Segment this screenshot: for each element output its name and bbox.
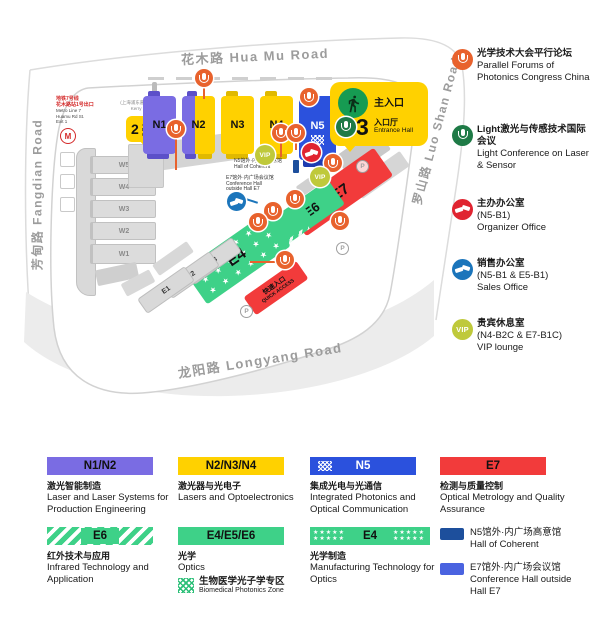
category-zh: 红外技术与应用 [47, 550, 175, 562]
vip-icon: VIP [452, 319, 473, 340]
outside-zh: N5馆外·内广场高意馆 [470, 527, 590, 539]
legend-zh: 光学技术大会平行论坛 [477, 48, 593, 60]
legend-item-parallel-forums: 光学技术大会平行论坛 Parallel Forums of Photonics … [448, 48, 600, 83]
handshake-red-icon [452, 199, 473, 220]
band-e4: ★★★★★ ★★★★★ E4 ★★★★★ ★★★★★ [310, 527, 430, 545]
biomedical-en: Biomedical Photonics Zone [199, 587, 318, 595]
legend-en: Parallel Forums of Photonics Congress Ch… [477, 60, 593, 83]
legend-loc: (N4-B2C & E7-B1C) [477, 330, 593, 342]
handshake-blue-icon [452, 259, 473, 280]
conference-swatch [440, 563, 464, 575]
coherent-swatch [440, 528, 464, 540]
legend-en: Organizer Office [477, 222, 593, 234]
category-optics: 光学 Optics [178, 550, 306, 574]
biomedical-zh: 生物医学光子学专区 [199, 576, 318, 587]
legend-item-vip-lounge: VIP 贵宾休息室 (N4-B2C & E7-B1C) VIP lounge [448, 318, 600, 353]
category-zh: 激光智能制造 [47, 480, 175, 492]
category-e4: 光学制造 Manufacturing Technology for Optics [310, 550, 438, 585]
band-label: N2/N3/N4 [206, 460, 257, 472]
category-e6: 红外技术与应用 Infrared Technology and Applicat… [47, 550, 175, 585]
category-zh: 光学 [178, 550, 306, 562]
biomedical-zone: 生物医学光子学专区 Biomedical Photonics Zone [178, 576, 318, 595]
legend-en: Sales Office [477, 282, 593, 294]
legend-item-light-conference: Light激光与传感技术国际会议 Light Conference on Las… [448, 124, 600, 171]
mic-orange-icon [452, 49, 473, 70]
band-e6-solid: E6 [81, 528, 119, 544]
legend-loc: (N5-B1) [477, 210, 593, 222]
category-zh: 检测与质量控制 [440, 480, 568, 492]
category-en: Optical Metrology and Quality Assurance [440, 492, 568, 515]
category-en: Infrared Technology and Application [47, 562, 175, 585]
legend-en: VIP lounge [477, 342, 593, 354]
side-legend: 光学技术大会平行论坛 Parallel Forums of Photonics … [0, 0, 605, 445]
category-e7: 检测与质量控制 Optical Metrology and Quality As… [440, 480, 568, 515]
legend-zh: Light激光与传感技术国际会议 [477, 124, 593, 148]
vip-icon-label: VIP [456, 325, 469, 334]
outside-hall-coherent: N5馆外·内广场高意馆 Hall of Coherent [440, 527, 590, 551]
band-e4-e5-e6: E4/E5/E6 [178, 527, 284, 545]
outside-zh: E7馆外·内广场会议馆 [470, 562, 590, 574]
category-n1-n2: 激光智能制造 Laser and Laser Systems for Produ… [47, 480, 175, 515]
category-en: Laser and Laser Systems for Production E… [47, 492, 175, 515]
category-n5: 集成光电与光通信 Integrated Photonics and Optica… [310, 480, 438, 515]
band-label: N5 [356, 460, 371, 472]
band-e4-stars-right: ★★★★★ ★★★★★ [391, 530, 427, 542]
category-en: Manufacturing Technology for Optics [310, 562, 438, 585]
category-zh: 光学制造 [310, 550, 438, 562]
band-label: E6 [93, 530, 107, 542]
n5-hatch-icon [318, 461, 332, 471]
band-label: N1/N2 [84, 460, 117, 472]
legend-item-organizer-office: 主办办公室 (N5-B1) Organizer Office [448, 198, 600, 233]
star-row: ★★★★★ [393, 536, 425, 542]
band-label: E7 [486, 460, 500, 472]
venue-map-page: 花木路 Hua Mu Road 芳甸路 Fangdian Road 罗山路 Lu… [0, 0, 605, 641]
bottom-legend: N1/N2 激光智能制造 Laser and Laser Systems for… [0, 445, 605, 641]
mic-green-icon [452, 125, 473, 146]
star-row: ★★★★★ [313, 536, 345, 542]
legend-item-sales-office: 销售办公室 (N5-B1 & E5-B1) Sales Office [448, 258, 600, 293]
band-e7: E7 [440, 457, 546, 475]
legend-en: Light Conference on Laser & Sensor [477, 148, 593, 171]
category-n2-n3-n4: 激光器与光电子 Lasers and Optoelectronics [178, 480, 306, 504]
band-label: E4 [363, 530, 377, 542]
band-n2-n3-n4: N2/N3/N4 [178, 457, 284, 475]
legend-zh: 贵宾休息室 [477, 318, 593, 330]
category-zh: 集成光电与光通信 [310, 480, 438, 492]
outside-en: Hall of Coherent [470, 539, 590, 551]
band-n5: N5 [310, 457, 416, 475]
category-en: Optics [178, 562, 306, 574]
band-n1-n2: N1/N2 [47, 457, 153, 475]
outside-en: Conference Hall outside Hall E7 [470, 574, 590, 597]
band-label: E4/E5/E6 [207, 530, 256, 542]
band-e6: E6 [47, 527, 153, 545]
outside-hall-conference: E7馆外·内广场会议馆 Conference Hall outside Hall… [440, 562, 590, 597]
band-e4-stars-left: ★★★★★ ★★★★★ [313, 530, 345, 542]
legend-zh: 主办办公室 [477, 198, 593, 210]
legend-loc: (N5-B1 & E5-B1) [477, 270, 593, 282]
biomedical-hatch-icon [178, 578, 194, 593]
legend-zh: 销售办公室 [477, 258, 593, 270]
category-en: Integrated Photonics and Optical Communi… [310, 492, 438, 515]
category-en: Lasers and Optoelectronics [178, 492, 306, 504]
category-zh: 激光器与光电子 [178, 480, 306, 492]
